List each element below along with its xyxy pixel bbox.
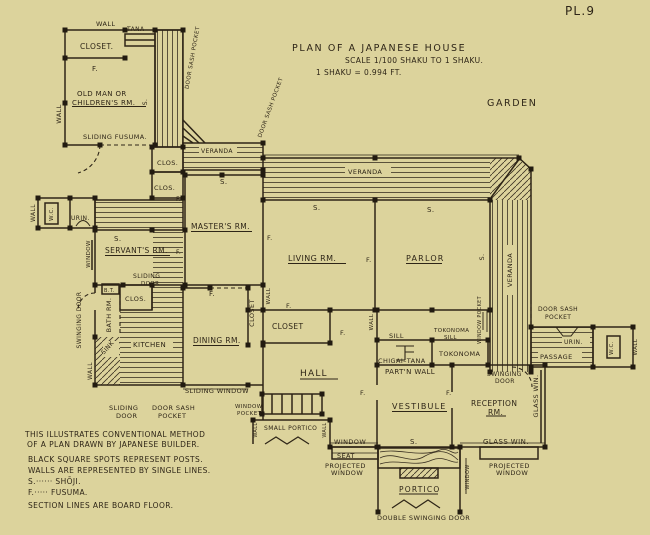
scale-line-1: SCALE 1/100 SHAKU TO 1 SHAKU. [345,56,483,65]
note-line-1: THIS ILLUSTRATES CONVENTIONAL METHOD [24,430,205,439]
garden-label: GARDEN [487,98,538,109]
post-marker [458,445,463,450]
tokonoma-sill-line1: TOKONOMA [433,328,469,334]
wall-label-top: WALL [96,20,115,28]
note-line-4: WALLS ARE REPRESENTED BY SINGLE LINES. [28,466,211,475]
post-marker [183,228,188,233]
wall-label-kitchen: WALL [87,362,94,380]
note-line-7: SECTION LINES ARE BOARD FLOOR. [28,501,173,510]
window-vertical-portico-label: WINDOW [465,464,471,489]
note-line-2: OF A PLAN DRAWN BY JAPANESE BUILDER. [27,440,200,449]
closet-small-1: CLOS. [157,159,178,167]
swinging-door-2-line2: DOOR [495,378,515,385]
bath-room-label: BATH RM. [105,298,113,333]
projected-window-1-line2: WINDOW [331,469,363,477]
post-marker [631,325,636,330]
closet-vertical-label: CLOSET [248,299,256,327]
fusuma-mark-v1: F. [360,389,366,397]
post-marker [261,308,266,313]
post-marker [220,173,225,178]
urinal-left-label: URIN. [71,215,90,222]
post-marker [93,283,98,288]
sliding-door-1-line1: SLIDING [133,273,160,280]
post-marker [375,308,380,313]
window-left-label: WINDOW [86,240,92,268]
small-portico-label: SMALL PORTICO [264,425,317,432]
fusuma-mark-v2: F. [446,389,452,397]
sliding-window-label: SLIDING WINDOW [185,387,249,395]
post-marker [488,308,493,313]
shoji-mark-5: S. [114,235,121,243]
shoji-mark-oldman: S. [142,99,149,106]
post-marker [529,325,534,330]
double-swinging-door-label: DOUBLE SWINGING DOOR [377,514,470,522]
post-marker [261,168,266,173]
wall-label-2: WALL [369,313,375,330]
veranda-top-label: VERANDA [348,168,382,176]
post-marker [93,228,98,233]
fusuma-mark-dining: F. [209,290,215,298]
post-marker [63,56,68,61]
servants-room-label: SERVANT'S RM. [105,246,168,255]
post-marker [36,196,41,201]
post-marker [260,392,265,397]
floor-plan-drawing: PL.9 PLAN OF A JAPANESE HOUSE SCALE 1/10… [0,0,650,535]
shoji-mark-4: S. [478,254,486,261]
wall-label-3: WALL [253,422,259,437]
note-line-6: F.····· FUSUMA. [28,488,88,497]
plate-9-japanese-house-plan: PL.9 PLAN OF A JAPANESE HOUSE SCALE 1/10… [0,0,650,535]
sliding-door-1-line2: DOOR [141,281,159,287]
parlor-label: PARLOR [406,254,445,263]
post-marker [261,283,266,288]
post-marker [36,226,41,231]
window-bottom-label: WINDOW [334,438,366,446]
post-marker [150,145,155,150]
post-marker [430,308,435,313]
post-marker [591,365,596,370]
post-marker [251,418,256,423]
post-marker [121,283,126,288]
masters-room-label: MASTER'S RM. [191,222,250,231]
fusuma-mark-closet: F. [92,65,98,73]
post-marker [93,383,98,388]
tana-label: TANA [126,26,145,33]
window-pocket-2-label: WINDOW POCKET [477,296,483,344]
post-marker [246,343,251,348]
door-sash-pocket-2-line1: DOOR SASH [152,404,195,412]
post-marker [328,341,333,346]
post-marker [63,101,68,106]
tokonoma-sill-line2: SILL [444,335,457,341]
window-pocket-1-line1: WINDOW [235,404,263,410]
shoji-mark-6: S. [410,438,417,446]
wall-label-left-top: WALL [55,104,63,123]
scale-line-2: 1 SHAKU = 0.994 FT. [316,68,402,77]
sliding-door-2-line2: DOOR [116,412,137,420]
post-marker [68,196,73,201]
post-marker [517,156,522,161]
post-marker [246,286,251,291]
urinal-right-label: URIN. [564,339,583,346]
wc-left-label: W.C. [49,207,55,221]
shoji-mark-1: S. [220,178,227,186]
sill-label: SILL [389,332,404,340]
post-marker [488,198,493,203]
projected-window-2-line2: WINDOW [496,469,528,477]
post-marker [328,308,333,313]
note-line-5: S.······ SHŌJI. [28,477,81,486]
post-marker [261,141,266,146]
sliding-fusuma-label: SLIDING FUSUMA. [83,133,147,141]
fusuma-mark-cl2: F. [340,329,346,337]
post-marker [150,196,155,201]
hall-label: HALL [300,369,328,379]
closet-top-label: CLOSET. [80,42,113,51]
closet-small-2: CLOS. [154,184,175,192]
vestibule-label: VESTIBULE [392,402,447,411]
post-marker [320,392,325,397]
post-marker [450,363,455,368]
veranda-topleft-label: VERANDA [201,148,233,155]
fusuma-mark-m3: F. [176,196,181,203]
post-marker [631,365,636,370]
post-marker [93,335,98,340]
door-sash-pocket-3-line1: DOOR SASH [538,306,578,313]
post-marker [328,418,333,423]
post-marker [123,56,128,61]
post-marker [98,143,103,148]
note-line-3: BLACK SQUARE SPOTS REPRESENT POSTS. [28,455,203,464]
post-marker [529,370,534,375]
post-marker [181,145,186,150]
post-marker [261,173,266,178]
post-marker [261,198,266,203]
bath-tub-label: B.T. [104,288,115,294]
post-marker [181,196,186,201]
fusuma-mark-m2: F. [366,256,372,264]
post-marker [430,338,435,343]
oldman-room-line2: CHILDREN'S RM. [72,99,135,107]
post-marker [529,167,534,172]
glass-window-bottom-label: GLASS WIN. [483,438,529,446]
reception-room-line1: RECEPTION [471,399,517,408]
post-marker [328,445,333,450]
post-marker [486,338,491,343]
post-marker [486,363,491,368]
plan-title: PLAN OF A JAPANESE HOUSE [292,43,466,54]
window-pocket-1-line2: POCKET [237,411,262,417]
post-marker [529,365,534,370]
post-marker [63,28,68,33]
plate-number: PL.9 [565,4,595,18]
sliding-door-2-line1: SLIDING [109,404,138,412]
fusuma-mark-m1: F. [267,234,273,242]
partition-wall-label: PART'N WALL [385,368,435,376]
portico-label: PORTICO [399,485,440,494]
post-marker [261,156,266,161]
shoji-mark-3: S. [427,206,434,214]
wall-label-wc: WALL [30,204,37,222]
post-marker [543,363,548,368]
glass-window-vertical-label: GLASS WIN. [532,375,540,418]
fusuma-mark-cl1: F. [286,302,292,310]
post-marker [320,412,325,417]
tokonoma-label: TOKONOMA [438,350,480,358]
chigai-tana-label: CHIGAI–TANA [378,357,426,365]
post-marker [63,143,68,148]
oldman-room-line1: OLD MAN OR [77,90,127,98]
wall-label-4: WALL [322,422,328,437]
post-marker [150,170,155,175]
post-marker [181,286,186,291]
post-marker [591,325,596,330]
post-marker [375,445,380,450]
post-marker [153,28,158,33]
seat-label: SEAT [337,452,355,460]
post-marker [375,338,380,343]
post-marker [450,445,455,450]
post-marker [68,226,73,231]
door-sash-pocket-2-line2: POCKET [158,412,186,420]
closet-mid-label: CLOSET [272,322,304,331]
post-marker [373,156,378,161]
reception-room-line2: RM. [488,408,503,417]
veranda-right-label: VERANDA [506,253,514,287]
swinging-door-left-label: SWINGING DOOR [76,292,83,349]
passage-label: PASSAGE [540,353,573,361]
door-sash-pocket-3-line2: POCKET [545,314,571,321]
kitchen-label: KITCHEN [133,341,166,349]
post-marker [261,341,266,346]
wall-label-1: WALL [266,287,272,304]
fusuma-mark-m4: F. [176,249,181,256]
post-marker [181,28,186,33]
swinging-door-2-line1: SWINGING [487,371,522,378]
post-marker [430,363,435,368]
post-marker [150,228,155,233]
post-marker [93,196,98,201]
living-room-label: LIVING RM. [288,254,336,263]
dining-room-label: DINING RM. [193,336,241,345]
post-marker [183,173,188,178]
wall-label-right: WALL [633,338,639,355]
wc-right-label: W.C. [609,341,615,355]
shoji-mark-2: S. [313,204,320,212]
post-marker [373,198,378,203]
closet-small-3: CLOS. [125,295,146,303]
post-marker [543,445,548,450]
